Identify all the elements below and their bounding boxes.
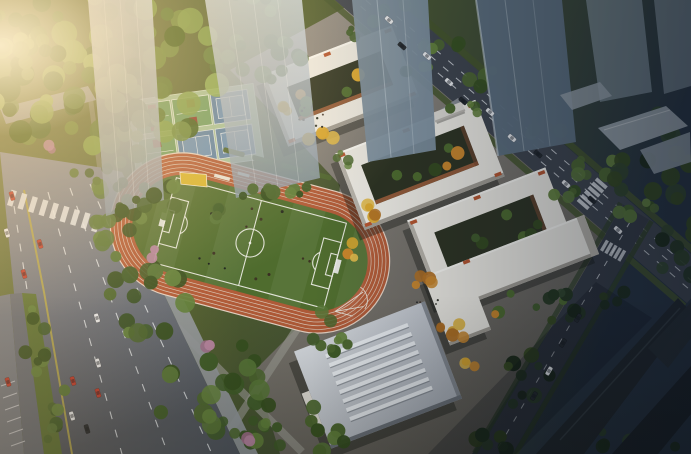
campus-aerial-scene <box>0 0 691 454</box>
light-overlays <box>0 0 691 454</box>
campus-aerial-rendering <box>0 0 691 454</box>
